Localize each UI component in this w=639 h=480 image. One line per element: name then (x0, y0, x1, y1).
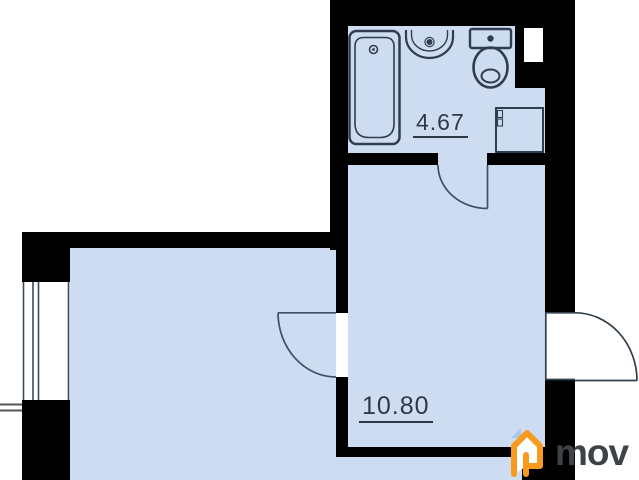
watermark-logo: mov (503, 425, 639, 480)
entrance-door (545, 312, 637, 381)
window (22, 282, 70, 400)
floor-plan: 4.67 10.80 mov (0, 0, 639, 480)
bathroom-area-label: 4.67 (413, 111, 468, 138)
sink (406, 30, 453, 58)
cabinet (496, 108, 543, 152)
balcony-divider-lines (0, 405, 22, 411)
logo-text: mov (555, 434, 628, 471)
house-icon (503, 425, 549, 480)
plan-symbols (0, 0, 639, 480)
living-room-area-label: 10.80 (359, 394, 433, 423)
bathroom-door (438, 165, 488, 209)
bathtub (350, 31, 400, 144)
interior-door (278, 313, 336, 377)
toilet (470, 29, 511, 88)
